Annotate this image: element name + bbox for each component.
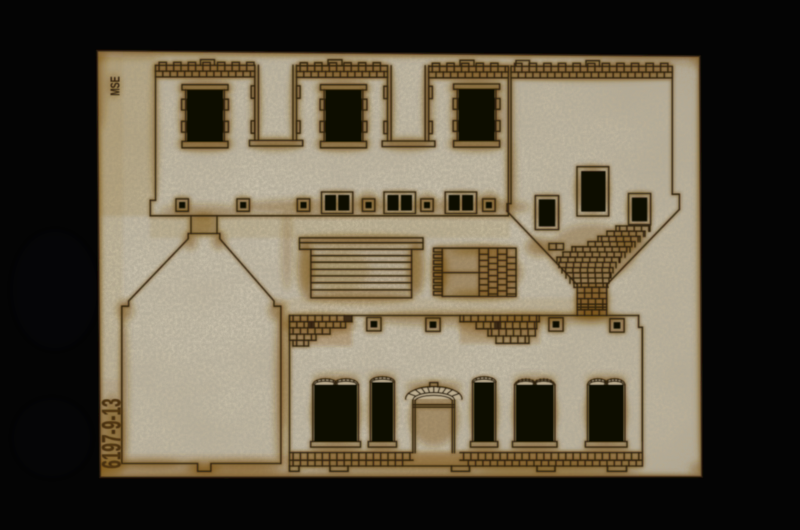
- svg-text:6197-9-13: 6197-9-13: [97, 398, 127, 468]
- svg-text:MSE: MSE: [109, 76, 123, 95]
